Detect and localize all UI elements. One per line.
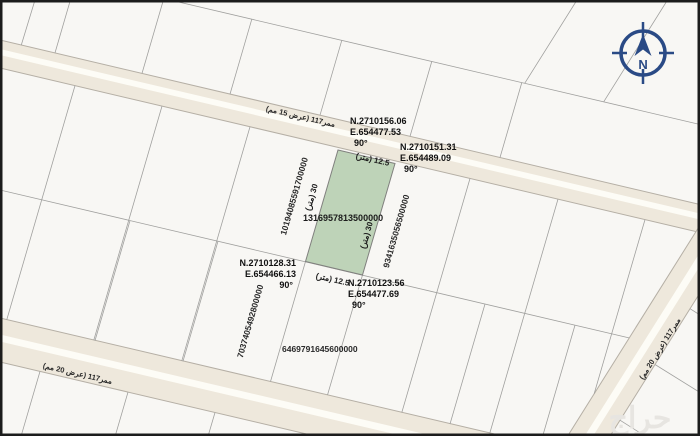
plot-map: N.2710156.06 E.654477.53 90° N.2710151.3… bbox=[0, 0, 700, 436]
subject-parcel-number: 1316957813500000 bbox=[303, 213, 383, 223]
coord-nw-easting: E.654477.53 bbox=[350, 127, 401, 137]
neighbor-parcel-south-number: 6469791645600000 bbox=[282, 344, 358, 354]
coord-nw-angle: 90° bbox=[354, 138, 368, 148]
coord-se-northing: N.2710123.56 bbox=[348, 278, 405, 288]
coord-se-angle: 90° bbox=[352, 300, 366, 310]
coord-ne-angle: 90° bbox=[404, 164, 418, 174]
haraj-watermark: حراج bbox=[609, 402, 672, 436]
coord-nw-northing: N.2710156.06 bbox=[350, 116, 407, 126]
coord-ne-northing: N.2710151.31 bbox=[400, 142, 457, 152]
coord-sw-angle: 90° bbox=[279, 280, 293, 290]
coord-sw-northing: N.2710128.31 bbox=[239, 258, 296, 268]
coord-se-easting: E.654477.69 bbox=[348, 289, 399, 299]
coord-sw-easting: E.654466.13 bbox=[245, 269, 296, 279]
compass-n-letter: N bbox=[638, 57, 647, 72]
land-plot-map-screenshot: N.2710156.06 E.654477.53 90° N.2710151.3… bbox=[0, 0, 700, 436]
coord-ne-easting: E.654489.09 bbox=[400, 153, 451, 163]
